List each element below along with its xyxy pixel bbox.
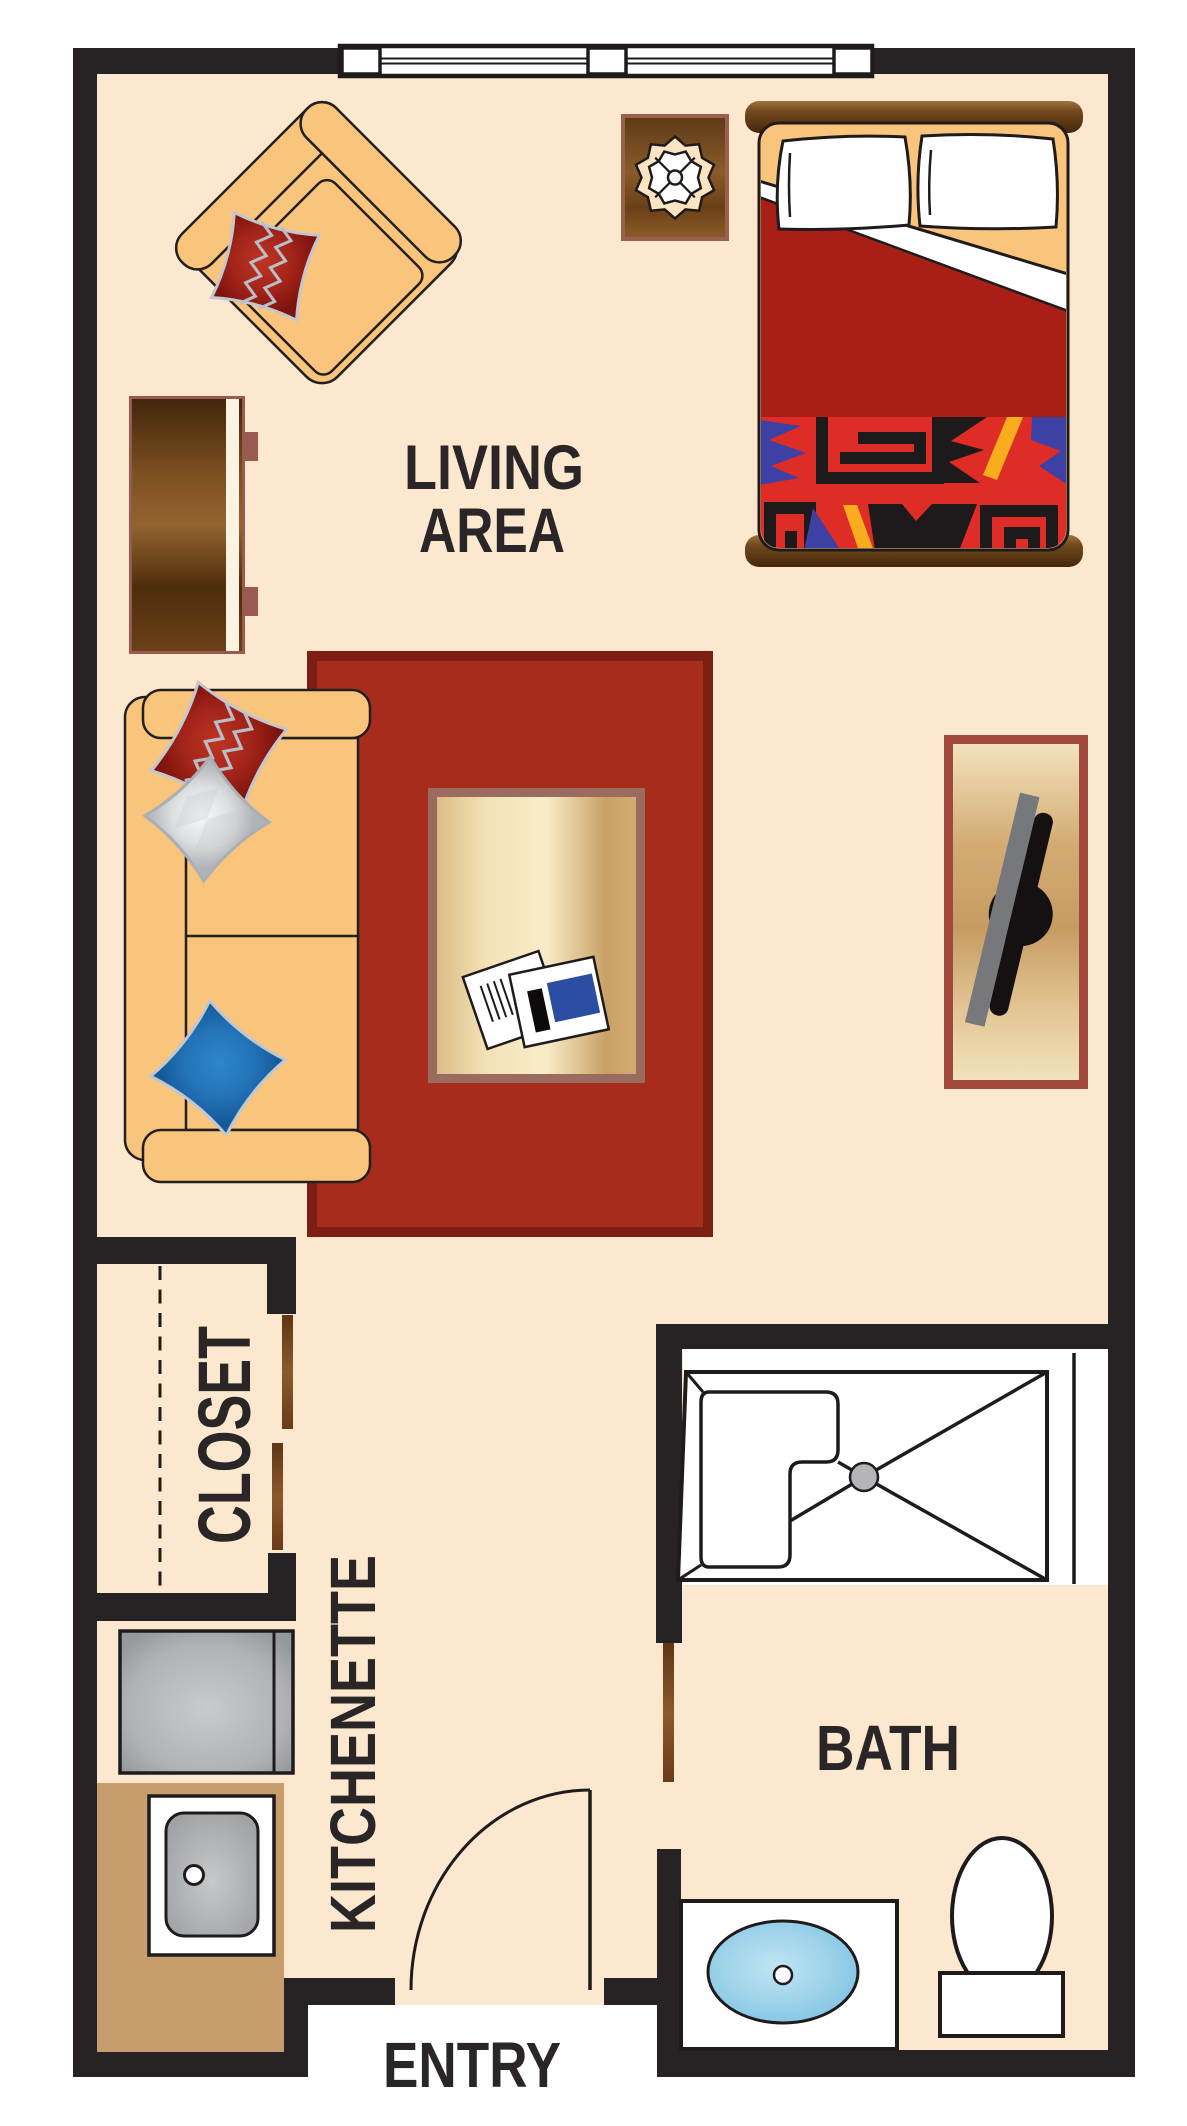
svg-text:AREA: AREA — [419, 496, 565, 566]
svg-text:LIVING: LIVING — [404, 433, 584, 503]
svg-text:BATH: BATH — [816, 1712, 960, 1784]
svg-text:ENTRY: ENTRY — [383, 2029, 561, 2101]
svg-text:KITCHENETTE: KITCHENETTE — [317, 1555, 389, 1933]
svg-text:CLOSET: CLOSET — [183, 1326, 266, 1544]
